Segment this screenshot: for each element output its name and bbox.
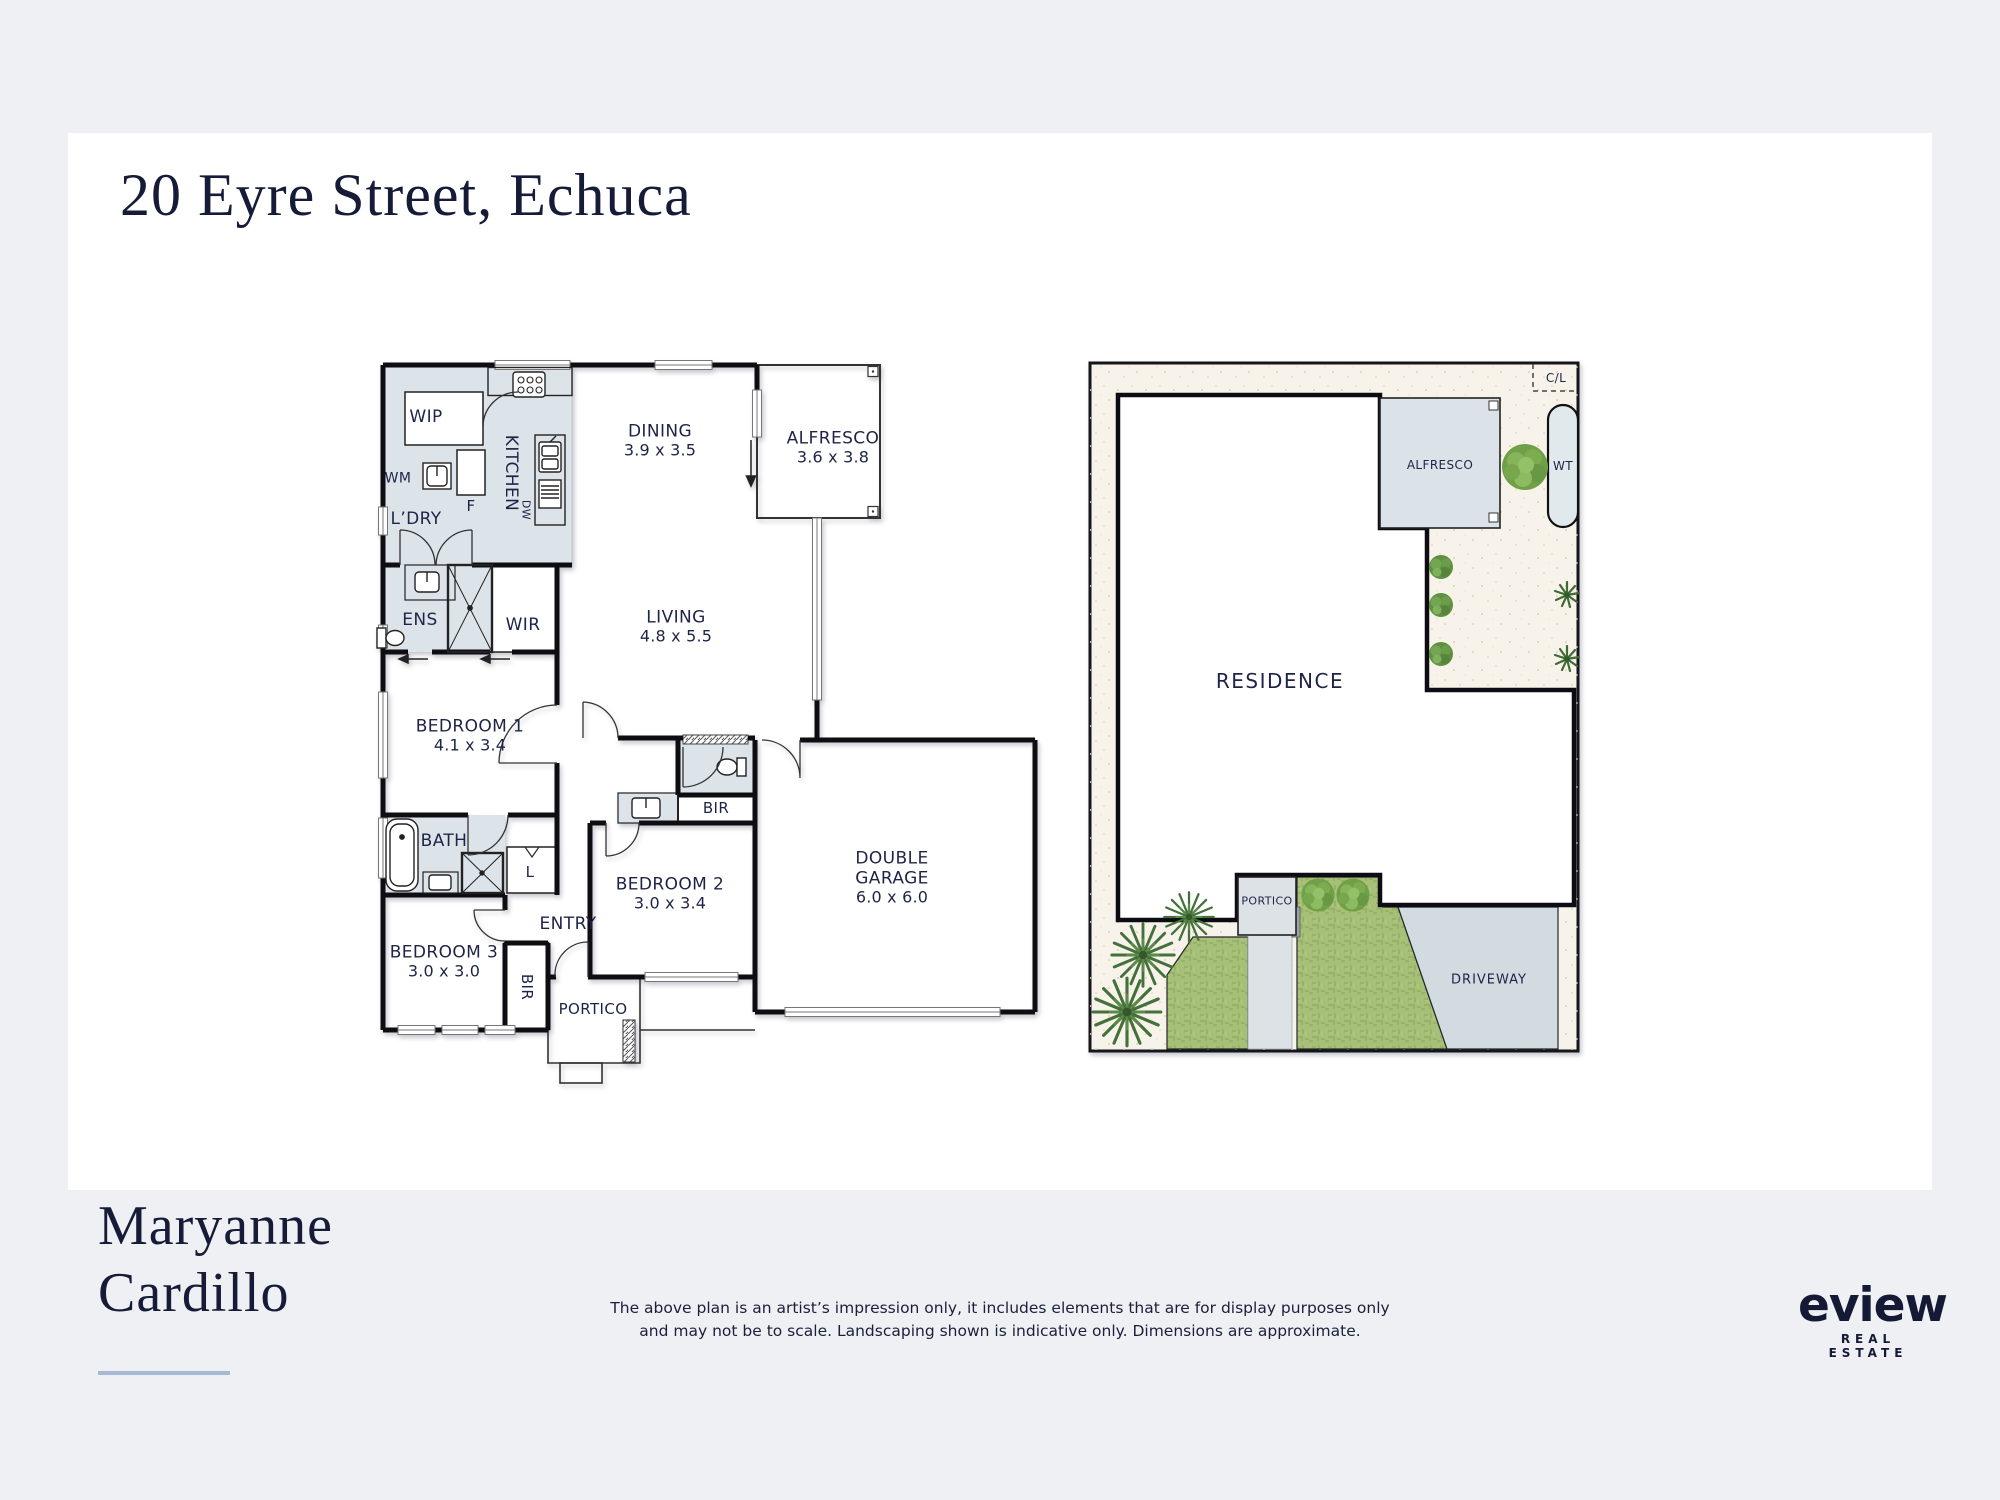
floor-plan: WIP KITCHEN DW F WM L’DRY DINING 3.9 x 3… bbox=[370, 350, 1050, 1095]
room-label-bir3: BIR bbox=[517, 974, 535, 1000]
agent-first-name: Maryanne bbox=[98, 1193, 333, 1260]
closet-boxes bbox=[405, 392, 755, 1030]
room-label-dining: DINING 3.9 x 3.5 bbox=[624, 422, 696, 461]
room-name-line1: DOUBLE bbox=[855, 849, 929, 869]
eview-logo: eview REAL ESTATE bbox=[1798, 1282, 1938, 1360]
room-label-wir: WIR bbox=[506, 615, 541, 635]
room-label-wip: WIP bbox=[409, 407, 442, 427]
site-label-portico: PORTICO bbox=[1241, 896, 1292, 909]
site-label-cl: C/L bbox=[1546, 371, 1566, 385]
site-label-wt: WT bbox=[1553, 459, 1573, 473]
room-label-dw: DW bbox=[519, 500, 532, 520]
page-background: 20 Eyre Street, Echuca bbox=[0, 0, 2000, 1500]
room-label-living: LIVING 4.8 x 5.5 bbox=[640, 608, 712, 647]
room-name: ALFRESCO bbox=[787, 429, 880, 449]
room-label-portico: PORTICO bbox=[559, 1001, 628, 1019]
room-dims: 4.1 x 3.4 bbox=[416, 737, 525, 756]
hatched-wall bbox=[683, 735, 748, 744]
room-dims: 4.8 x 5.5 bbox=[640, 628, 712, 647]
room-name: BEDROOM 1 bbox=[416, 717, 525, 737]
room-label-ens: ENS bbox=[402, 610, 437, 630]
logo-wordmark: eview bbox=[1798, 1282, 1938, 1329]
room-label-wm: WM bbox=[385, 471, 412, 488]
agent-underline bbox=[98, 1371, 230, 1375]
room-dims: 6.0 x 6.0 bbox=[855, 889, 929, 908]
room-label-bed2: BEDROOM 2 3.0 x 3.4 bbox=[616, 875, 725, 914]
room-label-bed3: BEDROOM 3 3.0 x 3.0 bbox=[390, 943, 499, 982]
disclaimer-line-1: The above plan is an artist’s impression… bbox=[500, 1297, 1500, 1320]
room-label-garage: DOUBLE GARAGE 6.0 x 6.0 bbox=[855, 849, 929, 908]
site-label-residence: RESIDENCE bbox=[1216, 670, 1344, 694]
room-label-bed1: BEDROOM 1 4.1 x 3.4 bbox=[416, 717, 525, 756]
disclaimer-line-2: and may not be to scale. Landscaping sho… bbox=[500, 1320, 1500, 1343]
room-dims: 3.0 x 3.4 bbox=[616, 895, 725, 914]
room-dims: 3.0 x 3.0 bbox=[390, 963, 499, 982]
site-plan-drawing bbox=[1085, 355, 1585, 1055]
room-label-bir2: BIR bbox=[703, 800, 729, 818]
agent-last-name: Cardillo bbox=[98, 1260, 333, 1327]
room-label-alfresco: ALFRESCO 3.6 x 3.8 bbox=[787, 429, 880, 468]
room-dims: 3.9 x 3.5 bbox=[624, 442, 696, 461]
room-label-linen: L bbox=[526, 864, 535, 882]
room-dims: 3.6 x 3.8 bbox=[787, 449, 880, 468]
room-name: LIVING bbox=[640, 608, 712, 628]
plan-sheet: 20 Eyre Street, Echuca bbox=[68, 133, 1932, 1190]
room-name-line2: GARAGE bbox=[855, 869, 929, 889]
property-address: 20 Eyre Street, Echuca bbox=[120, 161, 692, 230]
logo-tagline: REAL ESTATE bbox=[1798, 1332, 1938, 1360]
disclaimer: The above plan is an artist’s impression… bbox=[500, 1297, 1500, 1344]
room-name: BEDROOM 3 bbox=[390, 943, 499, 963]
room-name: BEDROOM 2 bbox=[616, 875, 725, 895]
room-label-ldry: L’DRY bbox=[390, 509, 441, 529]
room-label-entry: ENTRY bbox=[540, 914, 597, 934]
site-label-alfresco: ALFRESCO bbox=[1407, 458, 1473, 472]
portico-structure bbox=[548, 977, 755, 1083]
room-name: DINING bbox=[624, 422, 696, 442]
room-label-fridge: F bbox=[466, 498, 475, 516]
room-label-bath: BATH bbox=[421, 831, 468, 851]
site-label-driveway: DRIVEWAY bbox=[1451, 972, 1527, 987]
site-plan: C/L ALFRESCO WT RESIDENCE PORTICO DRIVEW… bbox=[1085, 355, 1585, 1055]
agent-name: Maryanne Cardillo bbox=[98, 1193, 333, 1327]
